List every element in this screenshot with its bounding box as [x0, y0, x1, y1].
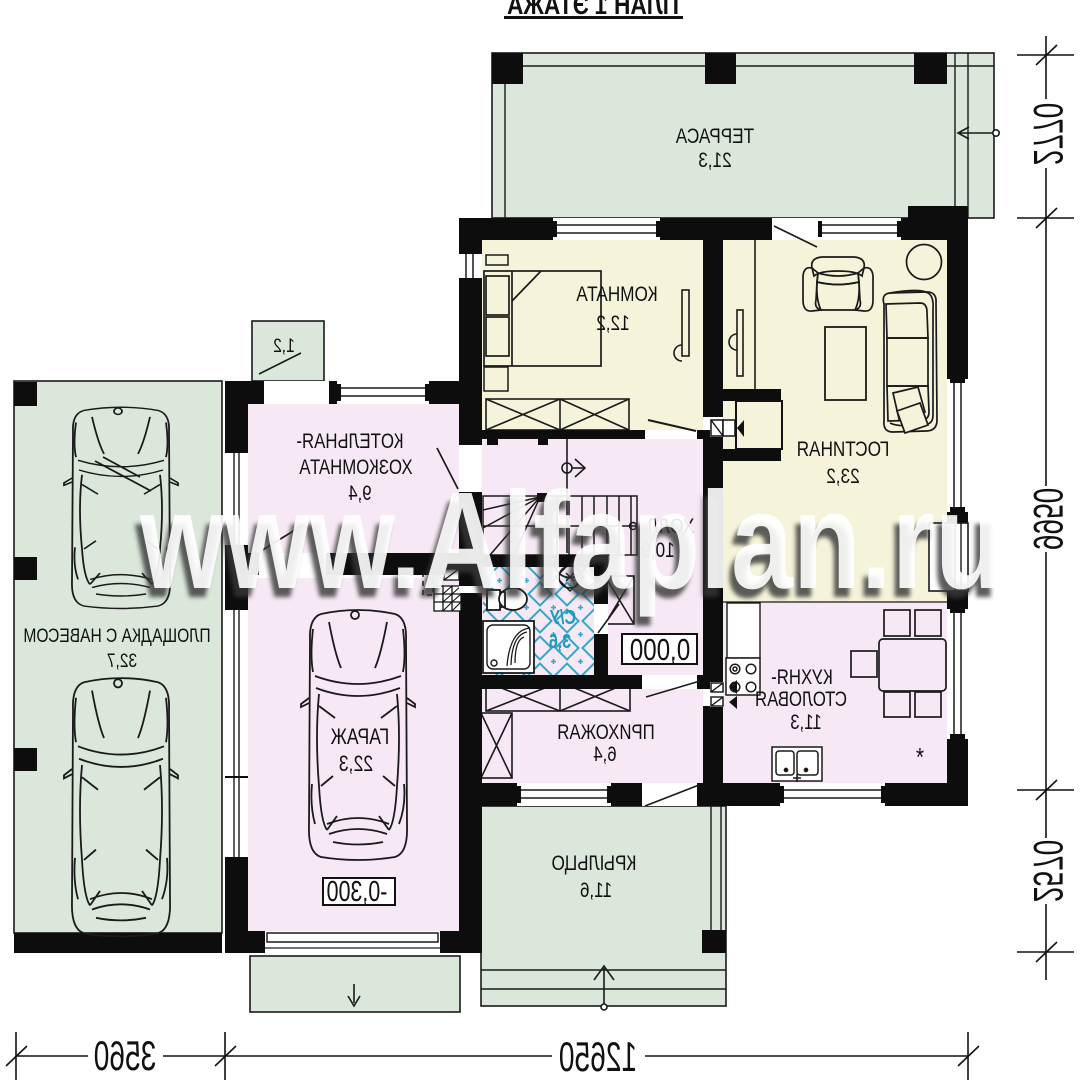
- svg-text:КУХНЯ-: КУХНЯ-: [771, 666, 833, 689]
- svg-text:ГАРАЖ: ГАРАЖ: [330, 725, 389, 749]
- svg-text:3560: 3560: [94, 1032, 157, 1079]
- svg-text:6,4: 6,4: [593, 743, 617, 766]
- svg-text:КОМНАТА: КОМНАТА: [576, 282, 657, 306]
- svg-text:2570: 2570: [1025, 840, 1072, 903]
- svg-text:ПРИХОЖАЯ: ПРИХОЖАЯ: [557, 721, 654, 744]
- svg-text:СТОЛОВАЯ: СТОЛОВАЯ: [755, 688, 847, 711]
- svg-text:ПЛОЩАДКА С НАВЕСОМ: ПЛОЩАДКА С НАВЕСОМ: [23, 625, 210, 647]
- svg-text:1,2: 1,2: [273, 335, 295, 357]
- svg-text:0,000: 0,000: [630, 632, 690, 667]
- svg-text:Alfaplan.ru: Alfaplan.ru: [422, 464, 1003, 618]
- svg-text:32,7: 32,7: [107, 650, 137, 672]
- svg-text:12,2: 12,2: [596, 311, 629, 335]
- svg-text:ТЕРРАСА: ТЕРРАСА: [676, 124, 754, 148]
- svg-text:ГОСТИНАЯ: ГОСТИНАЯ: [797, 437, 890, 461]
- svg-text:-0,300: -0,300: [327, 876, 388, 908]
- svg-text:9950: 9950: [1025, 488, 1072, 551]
- svg-text:www.: www.: [139, 464, 421, 618]
- svg-text:*: *: [916, 743, 924, 772]
- svg-text:КРЫЛЬЦО: КРЫЛЬЦО: [552, 851, 637, 875]
- svg-text:11,6: 11,6: [580, 878, 612, 902]
- svg-text:21,3: 21,3: [698, 148, 731, 172]
- svg-text:12650: 12650: [559, 1033, 637, 1080]
- svg-text:КОТЕЛЬНАЯ-: КОТЕЛЬНАЯ-: [296, 430, 403, 453]
- svg-text:3,6: 3,6: [549, 630, 571, 652]
- svg-text:2770: 2770: [1025, 103, 1072, 166]
- svg-text:22,3: 22,3: [339, 752, 373, 776]
- svg-text:11,3: 11,3: [790, 711, 821, 734]
